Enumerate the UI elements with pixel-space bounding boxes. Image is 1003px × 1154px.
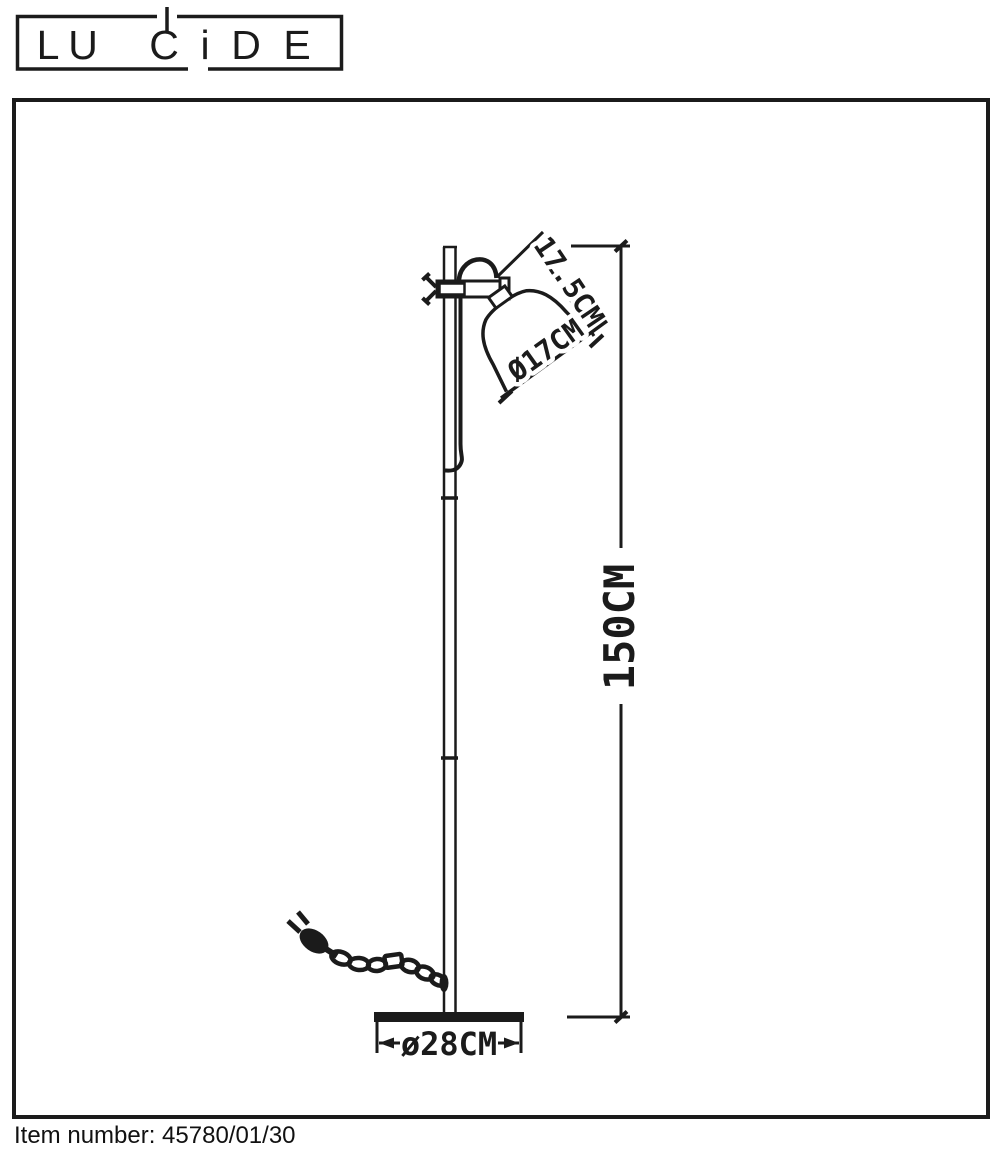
logo-letter: D bbox=[231, 22, 261, 68]
spec-sheet-page: L U C i D E bbox=[0, 0, 1003, 1154]
lamp-spec-drawing: L U C i D E bbox=[0, 0, 1003, 1154]
dim-arrow bbox=[379, 1038, 394, 1049]
logo-letter: U bbox=[68, 22, 98, 68]
dim-base-diameter: ø28CM bbox=[377, 1022, 521, 1063]
plug-prong bbox=[288, 921, 300, 932]
dim-label-base-diameter: ø28CM bbox=[401, 1025, 497, 1063]
dim-arrow bbox=[504, 1038, 519, 1049]
footer-item-number: Item number: 45780/01/30 bbox=[14, 1122, 296, 1150]
power-plug bbox=[288, 912, 337, 959]
lamp-pole bbox=[441, 247, 458, 1013]
clamp-block bbox=[440, 284, 465, 295]
plug-prong bbox=[298, 912, 308, 924]
lamp-base bbox=[374, 1012, 524, 1022]
cable-down bbox=[445, 297, 462, 471]
logo-letter: L bbox=[37, 22, 60, 68]
cord-grommet bbox=[440, 974, 449, 992]
logo-letter: C bbox=[149, 22, 179, 68]
brand-logo: L U C i D E bbox=[18, 7, 342, 69]
power-cord-chain bbox=[330, 949, 448, 988]
dim-label-height: 150CM bbox=[595, 564, 644, 690]
dimension-annotations: 17.5CM 17.5CM Ø17CM Ø17CM 150CM bbox=[377, 231, 644, 1063]
drawing-border bbox=[14, 100, 988, 1117]
logo-letter: i bbox=[200, 22, 209, 68]
power-cord bbox=[288, 912, 449, 992]
dim-tick bbox=[590, 335, 603, 347]
dim-label-shade-diameter: Ø17CM bbox=[501, 312, 590, 388]
clamp-knob bbox=[423, 274, 437, 305]
dim-lamp-height: 150CM bbox=[567, 241, 644, 1023]
logo-letter: E bbox=[283, 22, 310, 68]
